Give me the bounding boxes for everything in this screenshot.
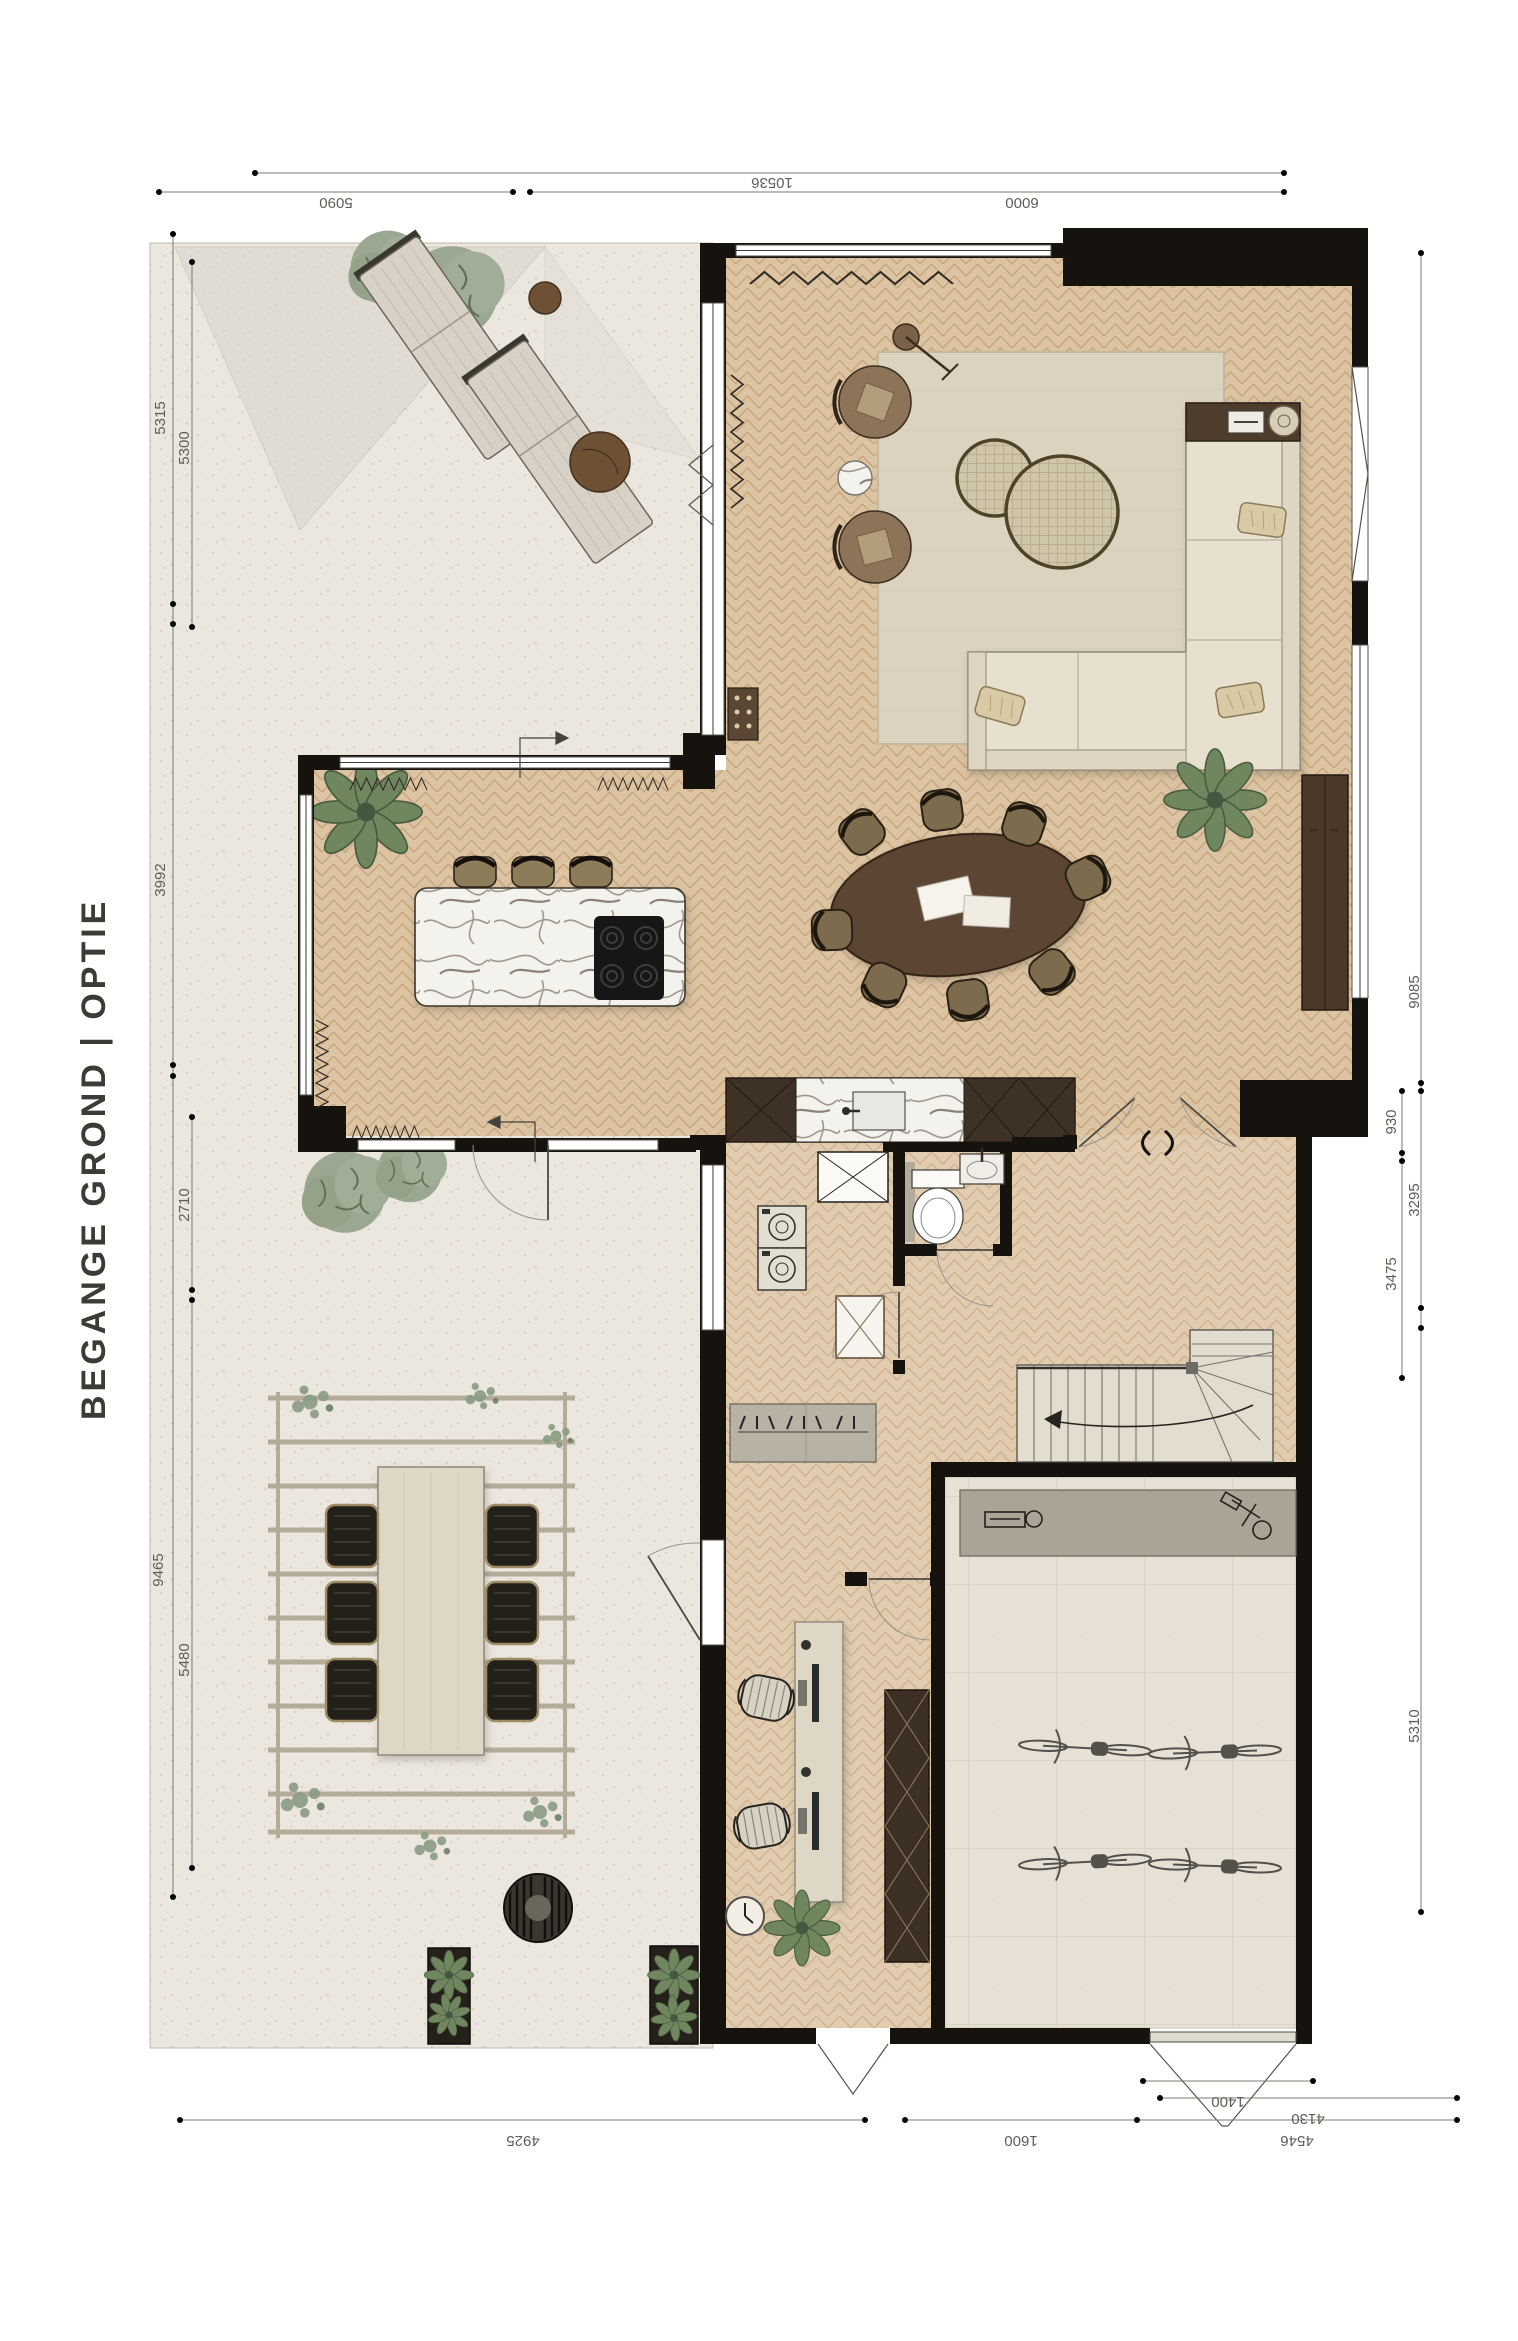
plant — [1164, 749, 1266, 851]
dimension-label: 6000 — [1005, 194, 1038, 211]
dimension-label: 4925 — [506, 2132, 539, 2149]
kitchen-island — [415, 888, 685, 1006]
dimension-label: 5480 — [176, 1643, 193, 1676]
plant — [310, 756, 422, 868]
cabinet — [728, 688, 758, 740]
newel-post — [1186, 1362, 1198, 1374]
dining-chair — [919, 787, 964, 832]
fire-bowl-icon — [504, 1874, 572, 1942]
dining-chair — [945, 977, 990, 1022]
dimension-label: 9085 — [1406, 975, 1423, 1008]
dimension-label: 4546 — [1280, 2132, 1313, 2149]
dimension-label: 3992 — [152, 863, 169, 896]
garage-door — [1150, 2032, 1296, 2126]
dining-chair — [811, 909, 852, 950]
dimension-label: 1400 — [1211, 2093, 1244, 2110]
dimension-label: 3295 — [1406, 1183, 1423, 1216]
dimension-label: 4130 — [1291, 2110, 1324, 2127]
garage-floor — [945, 1477, 1296, 2028]
outdoor-chair — [326, 1582, 378, 1644]
pillow — [1215, 682, 1265, 719]
side-table-marble — [838, 461, 872, 495]
dimension-label: 9465 — [150, 1553, 167, 1586]
dimension-label: 5315 — [152, 401, 169, 434]
bowl-icon — [1269, 406, 1299, 436]
washbasin-icon — [960, 1148, 1004, 1184]
window — [1352, 367, 1368, 581]
coat-rack — [730, 1404, 876, 1462]
niche-cabinet — [818, 1152, 888, 1202]
outdoor-chair — [486, 1582, 538, 1644]
planter-box — [641, 1946, 706, 2051]
outdoor-side-table — [529, 282, 561, 314]
dimension-label: 10536 — [751, 174, 793, 191]
outdoor-side-table — [570, 432, 630, 492]
plant — [764, 1890, 840, 1966]
wardrobe-cabinet — [885, 1690, 929, 1962]
bar-stool — [512, 857, 554, 887]
bar-stool — [570, 857, 612, 887]
wall-clock-icon — [726, 1897, 764, 1935]
floor-plan-page: 10536 5090 6000 5315 5300 3992 2710 9465… — [0, 0, 1518, 2336]
monitor-icon — [812, 1792, 819, 1850]
outdoor-chair — [326, 1659, 378, 1721]
door-opening — [702, 1540, 724, 1645]
kitchen-counter — [726, 1078, 1075, 1142]
keyboard-icon — [798, 1808, 807, 1834]
sink-icon — [853, 1092, 905, 1130]
dimension-label: 5310 — [1406, 1709, 1423, 1742]
outdoor-chair — [486, 1505, 538, 1567]
coffee-table — [1006, 456, 1118, 568]
page-title: BEGANGE GROND | OPTIE — [75, 898, 113, 1420]
workbench — [960, 1490, 1296, 1556]
dimension-label: 5090 — [319, 194, 352, 211]
window — [548, 1140, 658, 1150]
cooktop-icon — [594, 916, 664, 1000]
dimension-label: 2710 — [176, 1188, 193, 1221]
window — [358, 1140, 455, 1150]
planter-box — [420, 1948, 479, 2044]
paper-icon — [963, 895, 1011, 927]
outdoor-chair — [486, 1659, 538, 1721]
washer-icon — [758, 1206, 806, 1248]
bar-stool — [454, 857, 496, 887]
monitor-icon — [812, 1664, 819, 1722]
dryer-icon — [758, 1248, 806, 1290]
storage-cabinet — [836, 1296, 884, 1358]
toilet-icon — [912, 1170, 964, 1244]
dimension-label: 930 — [1383, 1109, 1400, 1134]
outdoor-chair — [326, 1505, 378, 1567]
dimension-label: 1600 — [1004, 2132, 1037, 2149]
pillow — [1237, 502, 1287, 538]
keyboard-icon — [798, 1680, 807, 1706]
rear-door-icon — [818, 2044, 888, 2094]
floor-plan: 10536 5090 6000 5315 5300 3992 2710 9465… — [0, 0, 1518, 2336]
dimension-label: 3475 — [1383, 1257, 1400, 1290]
dimension-label: 5300 — [176, 431, 193, 464]
